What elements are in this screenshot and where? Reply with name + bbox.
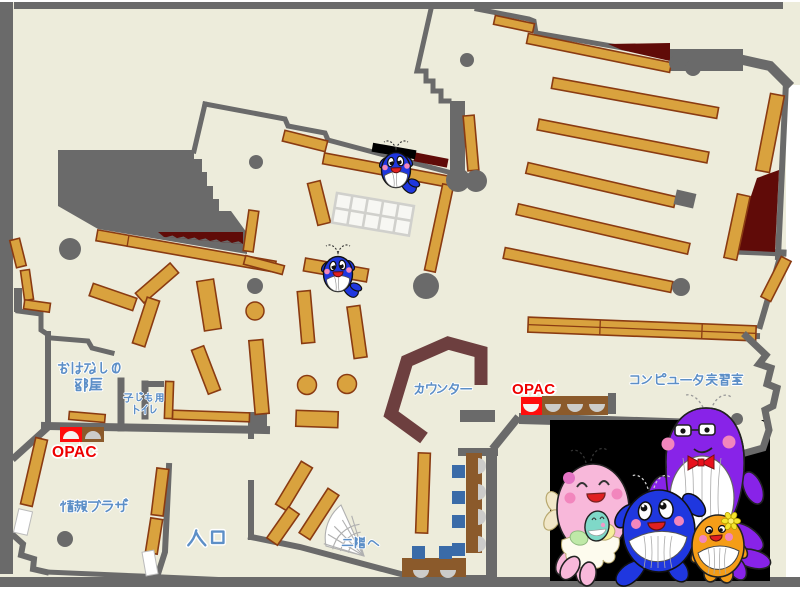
svg-text:OPAC: OPAC — [52, 444, 97, 461]
svg-text:OPAC: OPAC — [512, 381, 555, 398]
